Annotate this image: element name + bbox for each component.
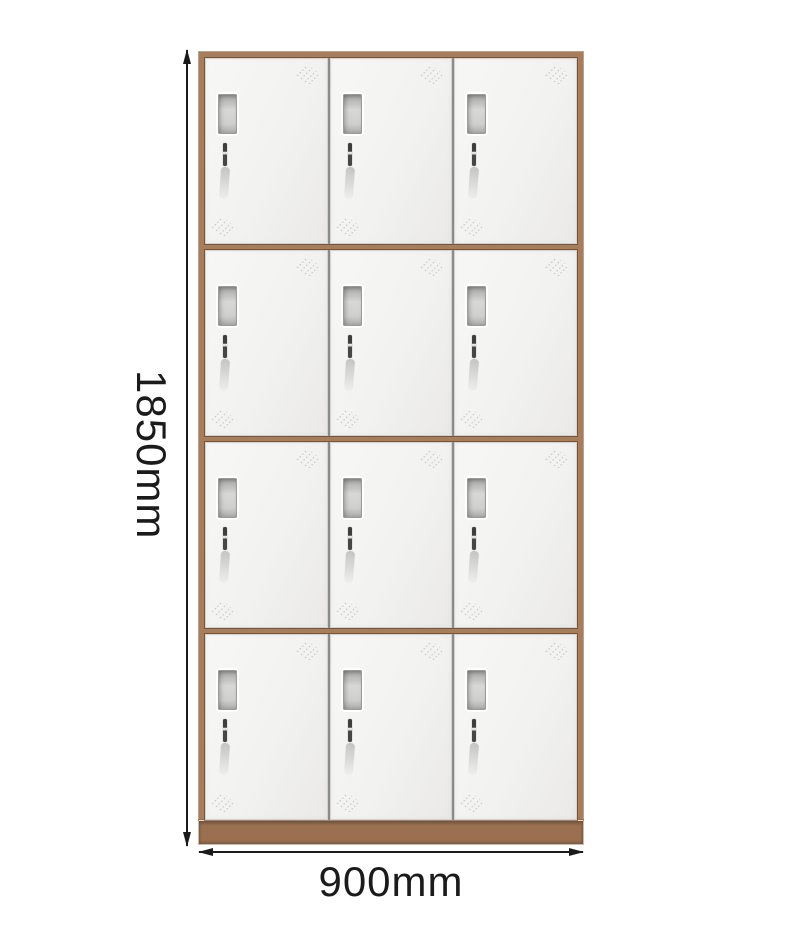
- door-lock: [345, 143, 357, 205]
- key-in-lock-icon: [472, 719, 476, 742]
- key-in-lock-icon: [472, 335, 476, 358]
- product-dimension-diagram: 1850mm: [0, 0, 790, 925]
- door-handle-recess: [343, 478, 362, 518]
- locker-door: [454, 250, 577, 436]
- arrow-left-icon: [198, 848, 213, 856]
- reflection-hatch-icon: [460, 218, 482, 236]
- door-lock: [220, 719, 232, 781]
- locker-row: [205, 58, 577, 244]
- locker-door: [205, 58, 328, 244]
- reflection-hatch-icon: [420, 258, 442, 276]
- reflection-hatch-icon: [336, 602, 358, 620]
- reflection-hatch-icon: [545, 642, 567, 660]
- door-lock: [345, 335, 357, 397]
- reflection-hatch-icon: [211, 602, 233, 620]
- reflection-hatch-icon: [420, 642, 442, 660]
- reflection-hatch-icon: [211, 218, 233, 236]
- door-lock: [220, 143, 232, 205]
- arrow-right-icon: [569, 848, 584, 856]
- door-handle-recess: [218, 286, 237, 326]
- locker-door: [454, 634, 577, 820]
- reflection-hatch-icon: [545, 450, 567, 468]
- reflection-hatch-icon: [336, 794, 358, 812]
- key-in-lock-icon: [472, 527, 476, 550]
- reflection-hatch-icon: [211, 410, 233, 428]
- reflection-hatch-icon: [460, 410, 482, 428]
- arrow-down-icon: [183, 832, 191, 847]
- key-in-lock-icon: [348, 335, 352, 358]
- reflection-hatch-icon: [545, 258, 567, 276]
- key-in-lock-icon: [472, 143, 476, 166]
- locker-door: [454, 442, 577, 628]
- key-strap-icon: [468, 551, 479, 584]
- door-lock: [469, 335, 481, 397]
- reflection-hatch-icon: [336, 218, 358, 236]
- locker-cabinet: [199, 52, 583, 844]
- door-handle-recess: [343, 670, 362, 710]
- reflection-hatch-icon: [420, 66, 442, 84]
- reflection-hatch-icon: [296, 66, 318, 84]
- locker-door: [205, 250, 328, 436]
- key-strap-icon: [468, 167, 479, 200]
- key-strap-icon: [468, 359, 479, 392]
- key-strap-icon: [344, 167, 355, 200]
- door-handle-recess: [467, 478, 486, 518]
- width-dimension-label: 900mm: [199, 858, 583, 906]
- door-handle-recess: [218, 94, 237, 134]
- key-in-lock-icon: [348, 143, 352, 166]
- reflection-hatch-icon: [420, 450, 442, 468]
- arrow-up-icon: [183, 49, 191, 64]
- locker-door: [330, 250, 453, 436]
- locker-row: [205, 442, 577, 628]
- locker-door-grid: [205, 58, 577, 820]
- key-strap-icon: [344, 551, 355, 584]
- width-dimension-line: [199, 851, 583, 853]
- key-in-lock-icon: [223, 335, 227, 358]
- door-lock: [220, 335, 232, 397]
- reflection-hatch-icon: [460, 794, 482, 812]
- locker-door: [205, 442, 328, 628]
- locker-row: [205, 634, 577, 820]
- key-in-lock-icon: [223, 719, 227, 742]
- key-strap-icon: [344, 743, 355, 776]
- locker-door: [330, 58, 453, 244]
- locker-door: [205, 634, 328, 820]
- locker-door: [454, 58, 577, 244]
- door-lock: [220, 527, 232, 589]
- key-strap-icon: [468, 743, 479, 776]
- door-handle-recess: [343, 286, 362, 326]
- door-lock: [469, 527, 481, 589]
- door-handle-recess: [467, 286, 486, 326]
- door-lock: [345, 719, 357, 781]
- door-handle-recess: [467, 94, 486, 134]
- locker-frame: [199, 52, 583, 820]
- locker-base-plinth: [199, 820, 583, 844]
- height-dimension-label: 1850mm: [116, 330, 186, 580]
- key-strap-icon: [219, 551, 230, 584]
- reflection-hatch-icon: [296, 258, 318, 276]
- door-lock: [469, 719, 481, 781]
- reflection-hatch-icon: [296, 450, 318, 468]
- door-handle-recess: [467, 670, 486, 710]
- locker-door: [330, 634, 453, 820]
- door-handle-recess: [218, 478, 237, 518]
- key-in-lock-icon: [223, 143, 227, 166]
- key-in-lock-icon: [223, 527, 227, 550]
- height-dimension-line: [186, 50, 188, 846]
- reflection-hatch-icon: [336, 410, 358, 428]
- key-strap-icon: [219, 359, 230, 392]
- door-lock: [345, 527, 357, 589]
- reflection-hatch-icon: [211, 794, 233, 812]
- key-strap-icon: [219, 167, 230, 200]
- key-in-lock-icon: [348, 719, 352, 742]
- locker-row: [205, 250, 577, 436]
- reflection-hatch-icon: [296, 642, 318, 660]
- door-handle-recess: [343, 94, 362, 134]
- door-handle-recess: [218, 670, 237, 710]
- reflection-hatch-icon: [545, 66, 567, 84]
- key-strap-icon: [219, 743, 230, 776]
- key-strap-icon: [344, 359, 355, 392]
- door-lock: [469, 143, 481, 205]
- key-in-lock-icon: [348, 527, 352, 550]
- locker-door: [330, 442, 453, 628]
- reflection-hatch-icon: [460, 602, 482, 620]
